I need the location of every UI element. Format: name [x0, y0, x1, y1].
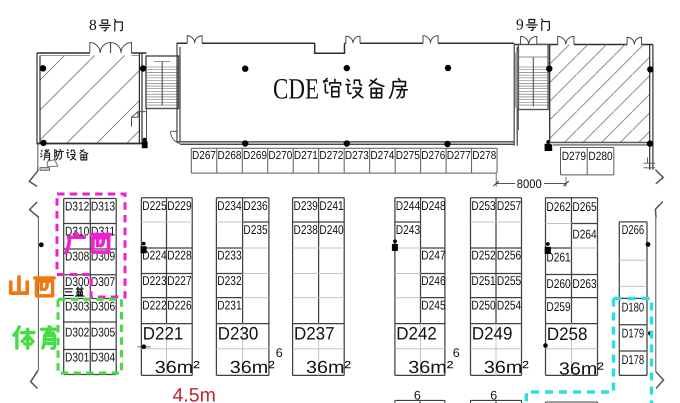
svg-text:D180: D180: [622, 299, 645, 314]
svg-text:D240: D240: [319, 222, 343, 237]
svg-text:D225: D225: [142, 198, 166, 213]
svg-text:D239: D239: [294, 198, 318, 213]
svg-text:D249: D249: [472, 323, 513, 343]
svg-text:D301: D301: [65, 349, 89, 364]
svg-text:D280: D280: [588, 149, 613, 163]
svg-text:D265: D265: [572, 199, 596, 214]
svg-text:36m²: 36m²: [306, 357, 351, 377]
svg-text:D312: D312: [65, 199, 89, 214]
svg-text:D300: D300: [65, 274, 89, 289]
svg-text:D270: D270: [268, 149, 292, 162]
svg-text:D257: D257: [497, 198, 521, 213]
svg-text:36m²: 36m²: [155, 357, 200, 377]
svg-text:4.5m: 4.5m: [173, 385, 216, 403]
svg-text:D223: D223: [142, 273, 166, 288]
svg-text:D262: D262: [546, 199, 570, 214]
svg-text:D268: D268: [218, 149, 242, 162]
svg-text:D246: D246: [421, 273, 445, 288]
svg-text:6: 6: [276, 346, 283, 360]
svg-text:D233: D233: [217, 248, 241, 263]
svg-text:D264: D264: [572, 227, 596, 242]
svg-text:D279: D279: [562, 149, 587, 163]
svg-text:D271: D271: [294, 149, 318, 162]
svg-text:D247: D247: [421, 248, 445, 263]
svg-text:D302: D302: [65, 324, 89, 339]
svg-text:D313: D313: [91, 199, 115, 214]
svg-text:D253: D253: [471, 198, 495, 213]
svg-text:D252: D252: [471, 248, 495, 263]
svg-text:D307: D307: [91, 274, 115, 289]
svg-text:8000: 8000: [517, 177, 542, 191]
svg-text:D179: D179: [622, 326, 645, 341]
svg-text:36m²: 36m²: [230, 357, 275, 377]
svg-text:D238: D238: [294, 222, 318, 237]
svg-text:D244: D244: [396, 198, 420, 213]
svg-text:D278: D278: [472, 149, 496, 162]
svg-text:D227: D227: [167, 273, 191, 288]
svg-text:D237: D237: [294, 323, 335, 343]
svg-text:D272: D272: [319, 149, 343, 162]
svg-text:D231: D231: [217, 297, 241, 312]
svg-text:D232: D232: [217, 273, 241, 288]
svg-text:D269: D269: [243, 149, 267, 162]
svg-text:D222: D222: [142, 297, 166, 312]
svg-text:D229: D229: [167, 198, 191, 213]
svg-text:D305: D305: [91, 324, 115, 339]
svg-text:D260: D260: [546, 276, 570, 291]
svg-text:D221: D221: [143, 323, 184, 343]
svg-text:D274: D274: [370, 149, 394, 162]
svg-text:9: 9: [516, 17, 524, 34]
svg-text:D259: D259: [546, 299, 570, 314]
svg-text:6: 6: [453, 346, 460, 360]
svg-text:D242: D242: [396, 323, 437, 343]
svg-text:D276: D276: [421, 149, 445, 162]
svg-text:D250: D250: [471, 297, 495, 312]
svg-text:36m²: 36m²: [559, 359, 604, 379]
svg-text:36m²: 36m²: [484, 357, 529, 377]
svg-text:6: 6: [414, 388, 421, 402]
svg-text:D226: D226: [167, 297, 191, 312]
svg-text:D251: D251: [471, 273, 495, 288]
svg-text:D258: D258: [547, 324, 588, 344]
svg-text:D275: D275: [396, 149, 420, 162]
svg-text:D267: D267: [192, 149, 216, 162]
svg-text:D273: D273: [345, 149, 369, 162]
svg-text:36m²: 36m²: [408, 357, 453, 377]
svg-text:D228: D228: [167, 248, 191, 263]
svg-text:D235: D235: [243, 222, 267, 237]
svg-text:D255: D255: [497, 273, 521, 288]
svg-text:D230: D230: [218, 323, 258, 343]
svg-text:D248: D248: [421, 198, 445, 213]
svg-text:CDE: CDE: [273, 74, 319, 106]
svg-text:D241: D241: [319, 198, 343, 213]
svg-text:D234: D234: [217, 198, 241, 213]
svg-text:D178: D178: [622, 352, 645, 367]
svg-text:D266: D266: [622, 222, 645, 237]
svg-text:D245: D245: [421, 297, 445, 312]
svg-text:8: 8: [89, 17, 97, 34]
svg-text:6: 6: [490, 388, 497, 402]
svg-text:D236: D236: [243, 198, 267, 213]
svg-text:D256: D256: [497, 248, 521, 263]
svg-text:D243: D243: [396, 222, 420, 237]
svg-text:D304: D304: [91, 349, 115, 364]
svg-text:D277: D277: [447, 149, 471, 162]
svg-text:D263: D263: [572, 276, 596, 291]
svg-text:D254: D254: [497, 297, 521, 312]
